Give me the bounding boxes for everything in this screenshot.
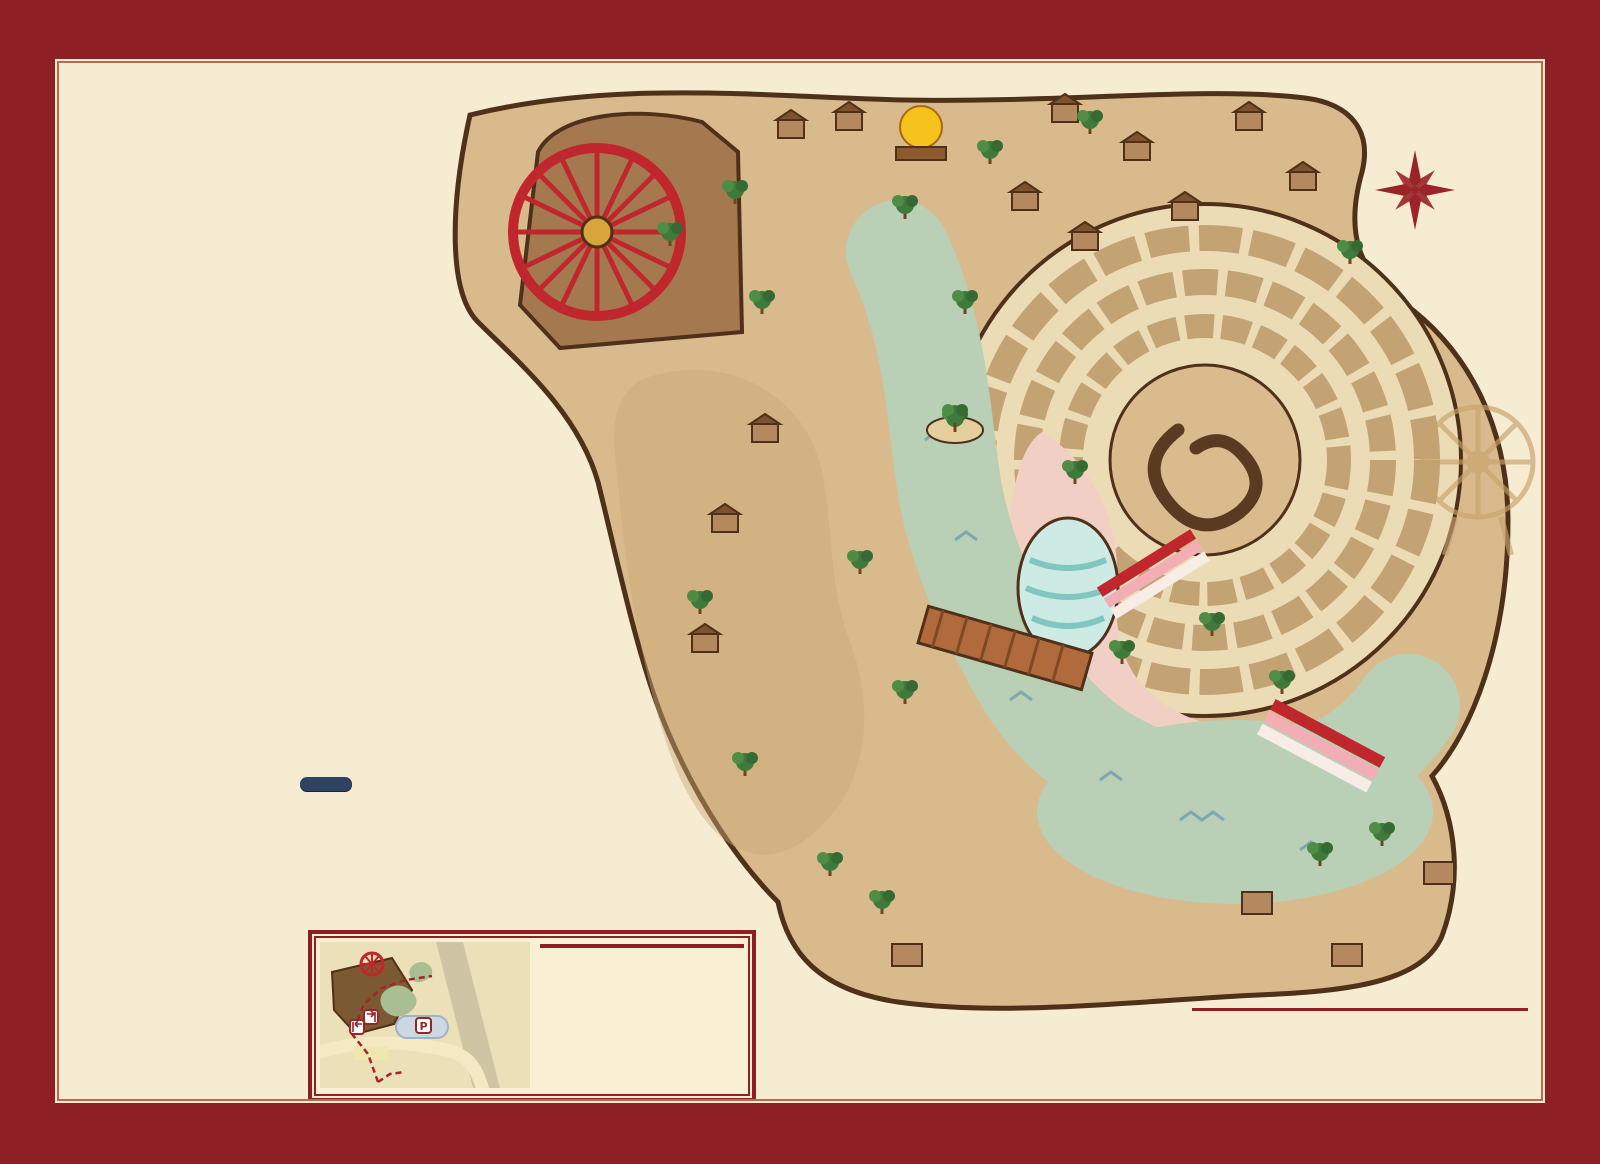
tribal-border-bottom: [0, 1106, 1600, 1164]
location-inset-map: P: [320, 942, 530, 1088]
tribal-border-left: [0, 0, 52, 1164]
inset-exit-icon: [364, 1010, 378, 1024]
tribal-border-right: [1548, 0, 1600, 1164]
entrance-exit-guide-box: P: [308, 930, 756, 1102]
tribal-border-top: [0, 0, 1600, 56]
svg-text:P: P: [419, 1020, 427, 1033]
services-legend: [1192, 1008, 1528, 1020]
compass-rose: [1350, 125, 1480, 255]
compass-star-icon: [1372, 147, 1458, 233]
inset-entrance-icon: [350, 1020, 364, 1034]
park-map-poster: P: [0, 0, 1600, 1164]
services-divider: [1192, 1008, 1528, 1011]
inset-parking-icon: P: [416, 1018, 431, 1033]
shops-title: [300, 777, 352, 791]
gate-guide-divider: [540, 944, 744, 948]
must-visit-shops: [300, 776, 830, 809]
gate-guide-legend: [540, 940, 744, 958]
